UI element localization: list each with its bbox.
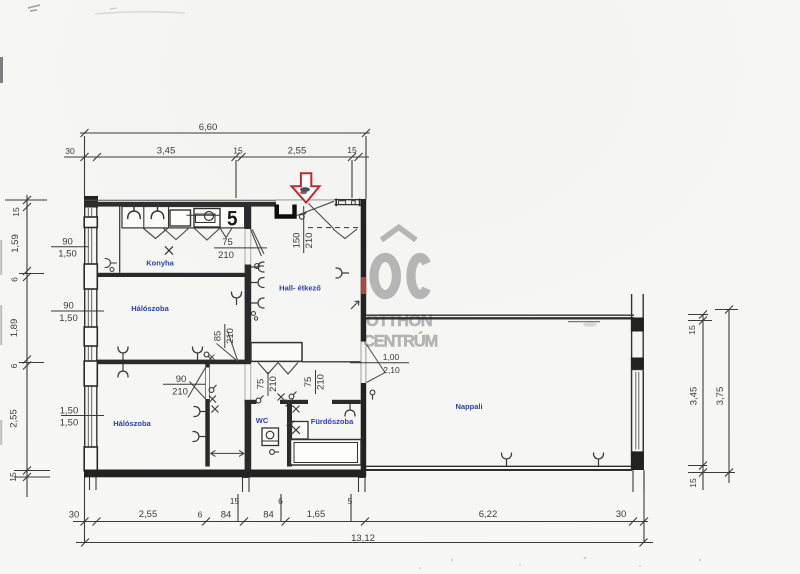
svg-text:2,55: 2,55 xyxy=(288,146,307,157)
svg-text:90: 90 xyxy=(62,237,73,248)
svg-text:5: 5 xyxy=(227,207,238,230)
svg-text:15: 15 xyxy=(11,207,21,217)
svg-text:Konyha: Konyha xyxy=(146,259,174,268)
svg-text:6: 6 xyxy=(198,510,203,520)
svg-text:3,45: 3,45 xyxy=(689,387,700,406)
svg-text:2,55: 2,55 xyxy=(9,409,20,428)
svg-text:1,59: 1,59 xyxy=(10,234,21,253)
svg-text:15: 15 xyxy=(230,496,240,506)
svg-text:30: 30 xyxy=(65,146,75,156)
svg-text:210: 210 xyxy=(304,233,315,249)
svg-text:1,50: 1,50 xyxy=(58,249,77,260)
svg-text:2,55: 2,55 xyxy=(139,509,158,520)
svg-text:75: 75 xyxy=(303,377,314,388)
svg-text:90: 90 xyxy=(63,301,74,312)
svg-text:3,45: 3,45 xyxy=(157,146,176,157)
svg-text:15: 15 xyxy=(688,478,698,488)
svg-text:15: 15 xyxy=(347,145,357,155)
svg-text:75: 75 xyxy=(256,379,267,390)
svg-text:150: 150 xyxy=(292,233,303,249)
svg-text:Hálószoba: Hálószoba xyxy=(131,304,169,313)
svg-text:1,89: 1,89 xyxy=(9,319,20,338)
svg-text:84: 84 xyxy=(221,510,232,521)
svg-text:15: 15 xyxy=(8,472,18,482)
svg-text:WC: WC xyxy=(256,416,269,425)
svg-text:30: 30 xyxy=(69,510,80,521)
svg-text:1,50: 1,50 xyxy=(59,313,78,324)
svg-text:210: 210 xyxy=(268,376,279,392)
svg-text:84: 84 xyxy=(263,510,274,521)
svg-text:1,50: 1,50 xyxy=(60,418,79,429)
svg-text:30: 30 xyxy=(616,509,627,520)
svg-text:Fürdőszoba: Fürdőszoba xyxy=(311,417,354,426)
svg-text:75: 75 xyxy=(222,237,233,248)
svg-text:Nappali: Nappali xyxy=(455,402,482,411)
svg-text:6: 6 xyxy=(10,277,20,282)
svg-text:15: 15 xyxy=(233,146,243,156)
svg-text:6: 6 xyxy=(278,496,283,506)
svg-text:210: 210 xyxy=(225,328,236,344)
svg-text:13,12: 13,12 xyxy=(351,533,375,544)
svg-text:210: 210 xyxy=(218,250,234,261)
svg-text:85: 85 xyxy=(213,331,224,342)
svg-text:5: 5 xyxy=(348,496,353,506)
svg-text:1,50: 1,50 xyxy=(60,406,79,417)
svg-text:CENTRÚM: CENTRÚM xyxy=(363,332,438,351)
svg-text:Hall- étkező: Hall- étkező xyxy=(279,284,321,293)
svg-text:1,00: 1,00 xyxy=(383,352,400,362)
svg-text:210: 210 xyxy=(316,374,327,390)
svg-text:90: 90 xyxy=(176,374,187,385)
svg-text:210: 210 xyxy=(172,387,188,398)
svg-text:6: 6 xyxy=(9,363,19,368)
svg-text:3,75: 3,75 xyxy=(715,387,726,406)
svg-text:6,60: 6,60 xyxy=(199,122,218,133)
svg-text:15: 15 xyxy=(687,325,697,335)
svg-text:Hálószoba: Hálószoba xyxy=(113,419,151,428)
svg-text:6,22: 6,22 xyxy=(479,509,498,520)
svg-text:2,10: 2,10 xyxy=(383,365,400,375)
svg-text:1,65: 1,65 xyxy=(307,509,326,520)
